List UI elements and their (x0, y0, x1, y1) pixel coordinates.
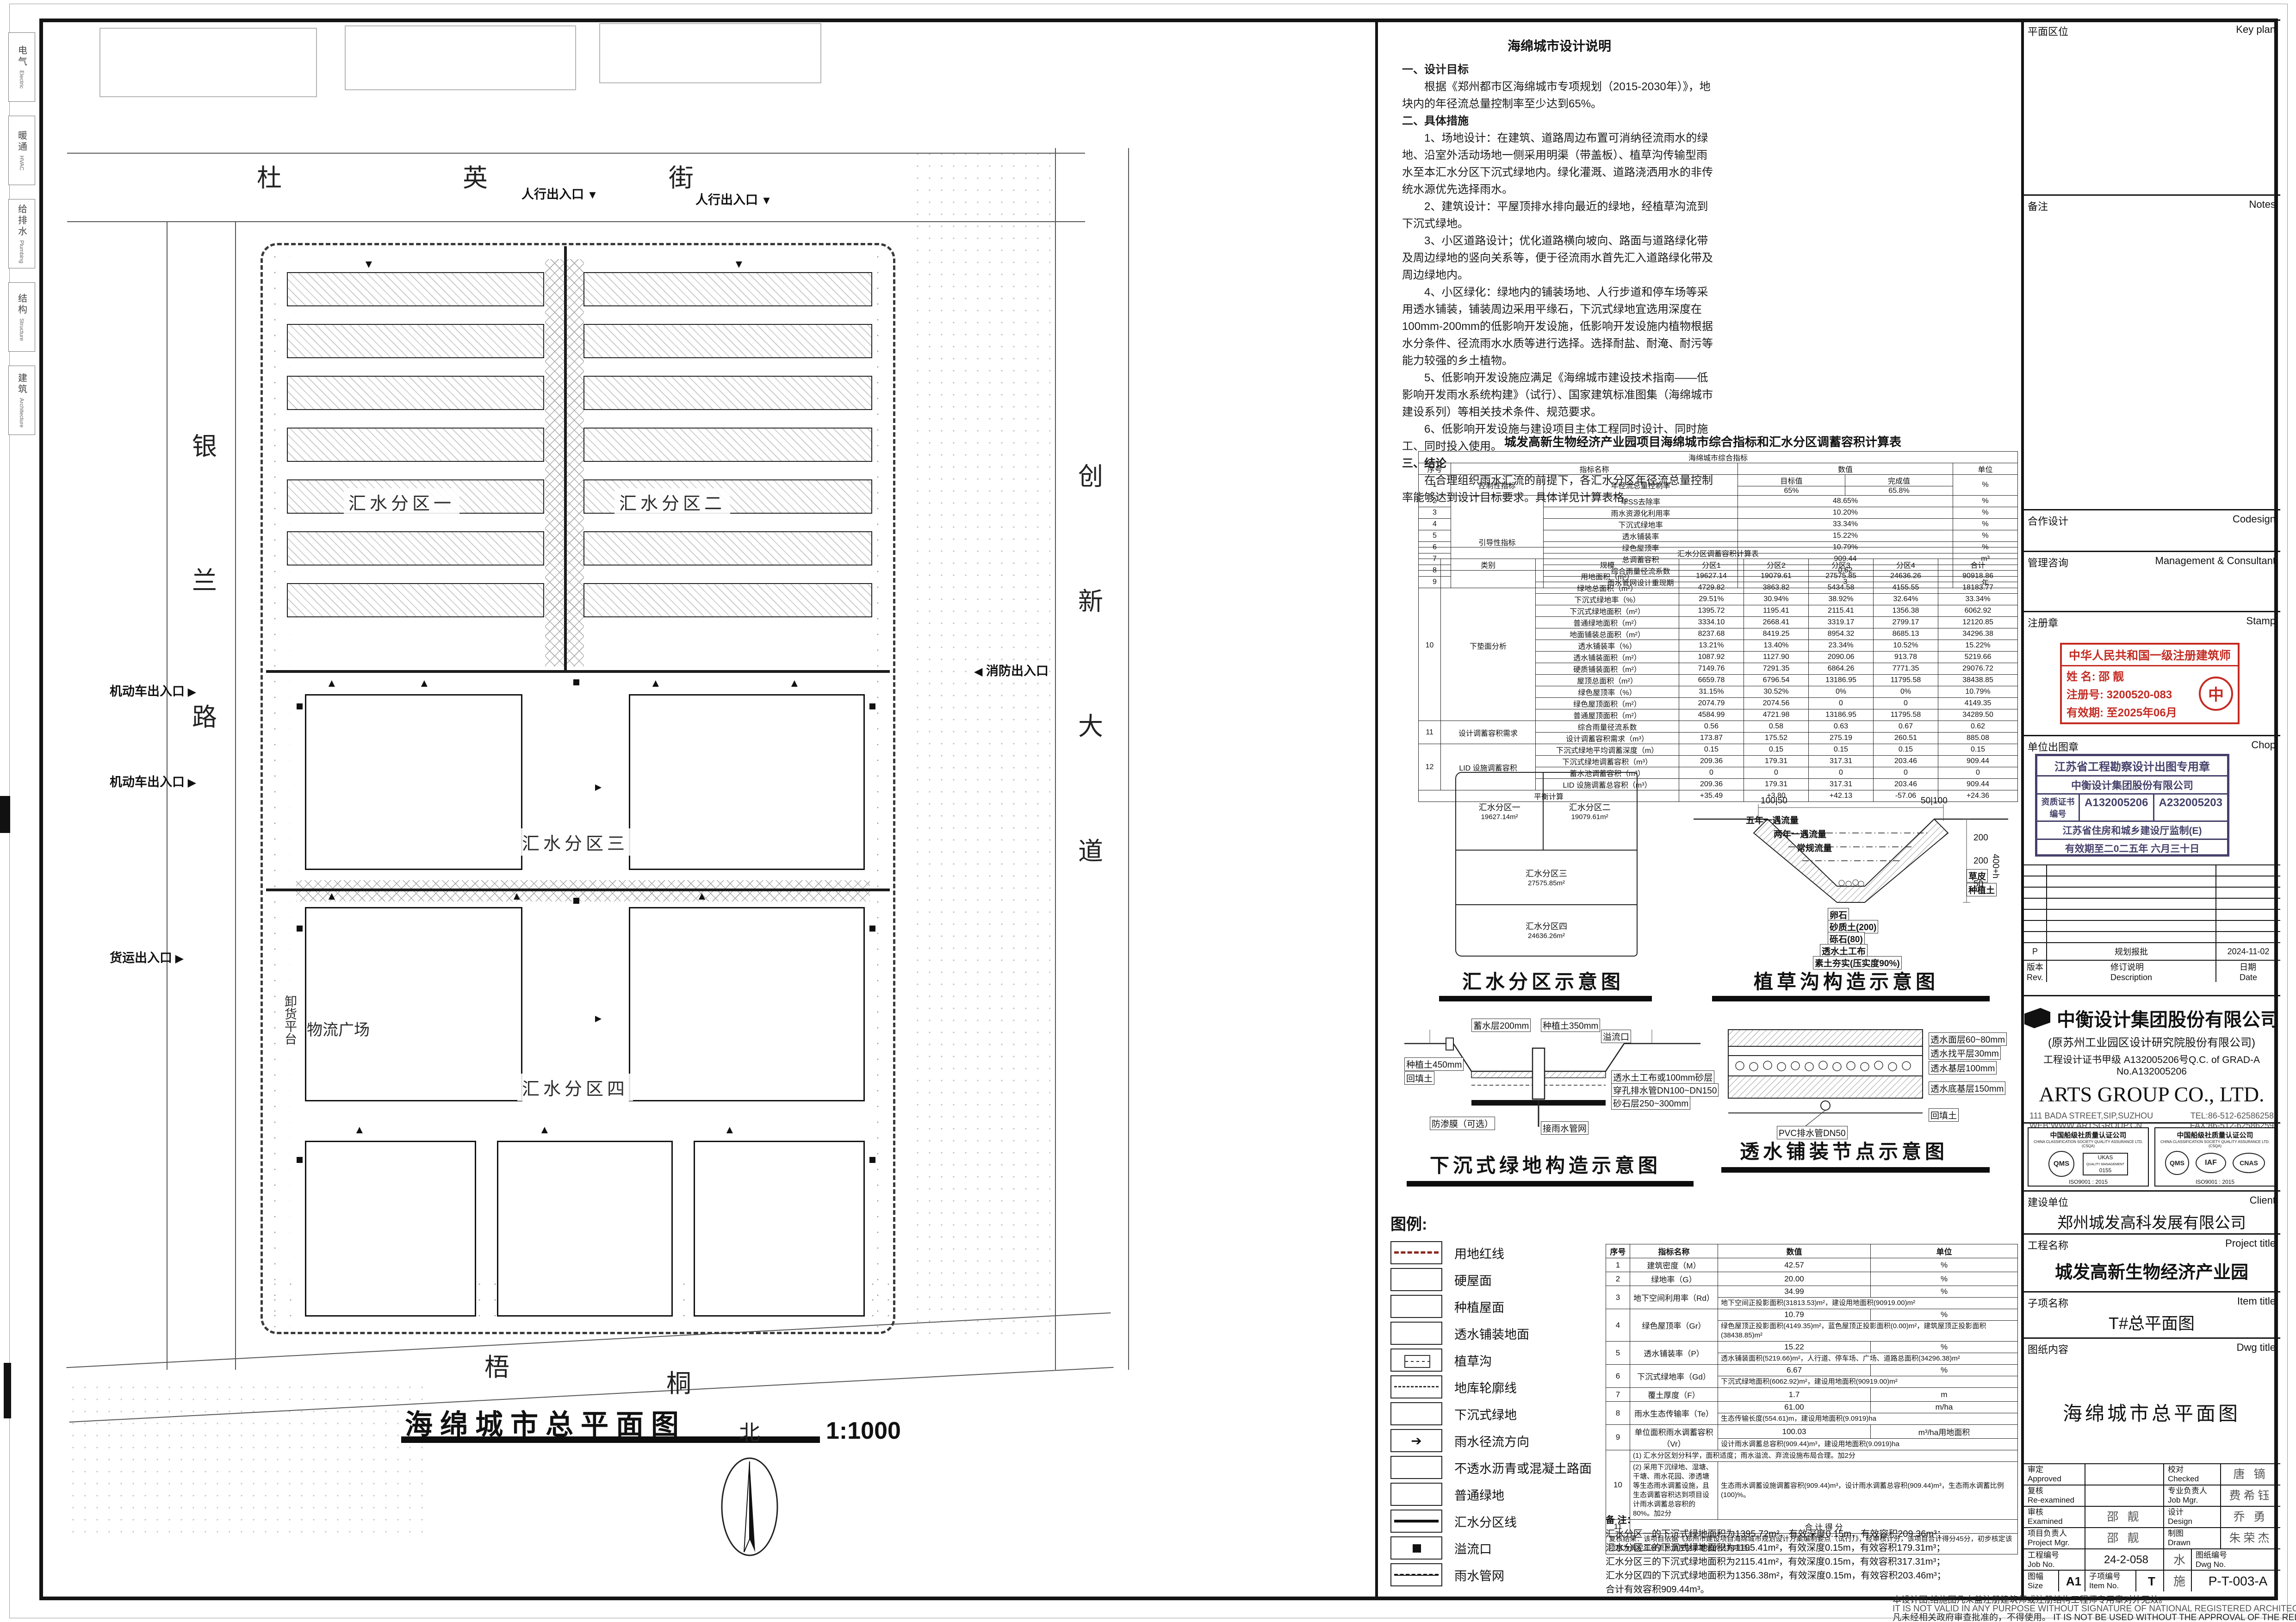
signature-cell: 朱荣杰 (2220, 1527, 2280, 1548)
swale-layer-label: 砾石(80) (1828, 932, 1865, 945)
stamp-seal-icon: 中 (2199, 666, 2238, 721)
building (583, 428, 872, 462)
zone-area: 24636.26m² (1528, 932, 1565, 940)
green-strip (267, 249, 290, 1327)
legend-item: 溢流口 (1390, 1536, 1492, 1560)
signature-cell: 图纸编号Dwg No. (2191, 1548, 2280, 1570)
catchment-divider (564, 246, 567, 672)
legend-label: 不透水沥青或混凝土路面 (1454, 1459, 1592, 1477)
discipline-strip: 建筑Architecture (8, 366, 35, 435)
overflow-outlet-icon (573, 898, 579, 904)
building (583, 583, 872, 617)
building (583, 324, 872, 358)
revision-cell (2023, 920, 2046, 931)
legend-swatch-pipe (1390, 1563, 1442, 1586)
entrance-label: 人行出入口 ▼ (695, 190, 772, 208)
signature-cell (2085, 1485, 2163, 1506)
revision-cell (2046, 898, 2215, 909)
runoff-arrow-icon: ▲ (593, 1013, 604, 1025)
runoff-arrow-icon: ▲ (724, 1125, 735, 1136)
entrance-arrow-icon: ▼ (758, 194, 772, 207)
chop-label-en: Chop (2251, 739, 2276, 754)
swale-flow-label: 五年一遇流量 (1744, 814, 1800, 826)
revision-cell (2023, 864, 2046, 876)
remark-line: 汇水分区三的下沉式绿地面积为2115.41m²，有效深度0.15m，有效容积31… (1606, 1555, 2017, 1569)
discipline-label-cn: 电气 (15, 45, 29, 68)
catchment-map-caption: 汇水分区示意图 (1462, 966, 1624, 994)
overflow-outlet-icon (297, 703, 303, 709)
green-belt-east (912, 148, 1050, 1342)
signature-cell: 邵 靓 (2085, 1527, 2163, 1548)
revision-cell (2046, 864, 2215, 876)
revision-cell (2023, 898, 2046, 909)
legend-item: 种植屋面 (1390, 1295, 1504, 1318)
zone-area: 19079.61m² (1571, 813, 1608, 821)
runoff-arrow-icon: ▲ (650, 678, 661, 689)
caption-bar (1407, 1181, 1694, 1187)
notes-heading: 二、具体措施 (1402, 112, 1717, 130)
revision-cell (2215, 898, 2280, 909)
building (583, 272, 872, 306)
notes-label-cn: 备注 (2028, 199, 2048, 213)
chop-label-cn: 单位出图章 (2028, 739, 2079, 754)
building (287, 324, 544, 358)
catchment-divider (266, 889, 890, 891)
discipline-strip: 暖通HVAC (8, 116, 35, 185)
swale-dim: 100|50 (1759, 796, 1789, 806)
stamp-label-en: Stamp (2246, 615, 2276, 630)
signature-cell: 专业负责人Job Mgr. (2163, 1485, 2220, 1506)
runoff-arrow-icon: ▲ (539, 1125, 550, 1136)
disclaimer-line: 本设计图,结施图凡未盖注册建筑师或注册结构工程师专用章对外无效。 (1893, 1596, 2286, 1604)
runoff-arrow-icon: ▲ (593, 782, 604, 793)
iaf-logo: IAF (2196, 1153, 2226, 1173)
binding-mark (4, 1363, 11, 1418)
swale-dim: 50 (1972, 879, 1985, 889)
legend-swatch-dots (1390, 1483, 1442, 1506)
signature-cell: 24-2-058 (2085, 1548, 2163, 1570)
swale-flow-label: 常规流量 (1795, 841, 1833, 854)
legend-label: 溢流口 (1454, 1539, 1492, 1557)
zone-name: 汇水分区三 (1526, 867, 1567, 879)
company-chop: 江苏省工程勘察设计出图专用章 中衡设计集团股份有限公司 资质证书编号 A1320… (2035, 754, 2229, 857)
street-name-char: 创 (1078, 456, 1103, 492)
legend-title: 图例: (1390, 1212, 1427, 1234)
client-section: 建设单位Client 郑州城发高科发展有限公司 (2023, 1190, 2280, 1233)
overflow-outlet-icon (869, 926, 875, 932)
 (1404, 1355, 1430, 1368)
zone-name: 汇水分区二 (1569, 801, 1611, 813)
revision-cell (2215, 931, 2280, 942)
paving-label: 透水找平层30mm (1929, 1046, 2001, 1060)
notes-paragraph: 3、小区道路设计；优化道路横向坡向、路面与道路绿化带及周边绿地的竖向关系等，便于… (1402, 232, 1717, 284)
green-strip (870, 249, 892, 1327)
signature-cell: 制图Drawn (2163, 1527, 2220, 1548)
runoff-arrow-icon: ▲ (696, 891, 707, 902)
score-table: 序号指标名称数值单位1建筑密度（M）42.57%2绿地率（G）20.00%3地下… (1606, 1244, 2017, 1554)
context-building (99, 28, 317, 97)
zone-name: 汇水分区四 (1526, 920, 1567, 932)
entrance-arrow-icon: ◀ (974, 665, 982, 678)
signature-cell: 邵 靓 (2085, 1506, 2163, 1527)
permeable-paving-diagram: 透水面层60~80mm透水找平层30mm透水基层100mm透水底基层150mm回… (1721, 1016, 2017, 1145)
street-name-char: 路 (192, 696, 217, 733)
legend-item: 雨水管网 (1390, 1563, 1504, 1586)
zone-name: 汇水分区一 (1479, 801, 1520, 813)
discipline-label-en: Structure (19, 318, 25, 341)
building (287, 428, 544, 462)
legend-swatch-arrow: ➔ (1390, 1429, 1442, 1452)
swale-dim: 200 (1972, 833, 1990, 843)
legend-item: 普通绿地 (1390, 1483, 1504, 1506)
legend-label: 普通绿地 (1454, 1485, 1504, 1504)
legend-swatch-grass (1390, 1402, 1442, 1425)
caption-bar (1712, 996, 1990, 1001)
legend-swatch-square (1390, 1536, 1442, 1560)
road-right (1055, 148, 1129, 1370)
cert-header-en: CHINA CLASSIFICATION SOCIETY QUALITY ASS… (2158, 1140, 2272, 1148)
dwg-name: 海绵城市总平面图 (2023, 1398, 2280, 1426)
street-name-char: 兰 (192, 560, 217, 597)
legend-item: 不透水沥青或混凝土路面 (1390, 1456, 1592, 1479)
revision-cell: 版本Rev. (2023, 960, 2046, 982)
management-label-cn: 管理咨询 (2028, 555, 2068, 570)
north-label: 北 (713, 1416, 787, 1447)
warehouse-building (629, 907, 865, 1101)
notes-section: 备注 Notes (2023, 194, 2280, 509)
notes-label-en: Notes (2249, 199, 2276, 213)
building (287, 583, 544, 617)
street-name-char: 新 (1078, 581, 1103, 617)
entrance-label: 货运出入口 ▶ (110, 948, 184, 966)
north-arrow: 北 (713, 1416, 787, 1555)
runoff-arrow-icon: ▲ (354, 1125, 365, 1136)
legend-item: 硬屋面 (1390, 1268, 1492, 1291)
warehouse-building (694, 1141, 865, 1317)
revision-cell (2023, 887, 2046, 898)
entrance-label: 机动车出入口 ▶ (110, 772, 196, 790)
company-address: 111 BADA STREET,SIP,SUZHOU (2029, 1111, 2153, 1121)
legend-label: 下沉式绿地 (1454, 1405, 1517, 1423)
discipline-label-en: Plumbing (19, 240, 25, 263)
keyplan-section: 平面区位 Key plan (2023, 19, 2280, 194)
runoff-arrow-icon: ▲ (326, 678, 337, 689)
warehouse-building (305, 694, 522, 870)
 (1394, 1386, 1439, 1387)
signature-cell: 审定Approved (2023, 1463, 2085, 1485)
entrance-arrow-icon: ▶ (185, 777, 196, 789)
signature-cell: A1 (2058, 1570, 2085, 1591)
cert-header-en: CHINA CLASSIFICATION SOCIETY QUALITY ASS… (2031, 1140, 2145, 1148)
swale-layer-label: 透水土工布 (1820, 944, 1868, 957)
project-section: 工程名称Project title 城发高新生物经济产业园 (2023, 1233, 2280, 1291)
revision-cell (2023, 876, 2046, 887)
swale-dim: 200 (1972, 856, 1990, 866)
keyplan-label-en: Key plan (2236, 24, 2276, 38)
entrance-arrow-icon: ▶ (172, 952, 184, 965)
swale-diagram: 五年一遇流量两年一遇流量常规流量卵石砂质土(200)砾石(80)透水土工布素土夯… (1689, 764, 2013, 958)
warehouse-building (305, 1141, 476, 1317)
site-plan: 杜英街银兰路创新大道梧桐 ▲▲▲▲▲▲▲▲▲▲▲▲▲▲ 汇水分区一汇水分区二汇水… (39, 19, 1375, 1600)
revision-cell: P (2023, 942, 2046, 960)
signature-cell: 图幅Size (2023, 1570, 2058, 1591)
warehouse-building (305, 907, 522, 1101)
discipline-label-cn: 建筑 (15, 373, 29, 395)
revision-cell (2023, 909, 2046, 920)
legend-item: 用地红线 (1390, 1241, 1504, 1264)
company-name-cn: 中衡设计集团股份有限公司 (2057, 1005, 2279, 1032)
 (1413, 1544, 1421, 1553)
company-logo (2024, 1008, 2050, 1028)
legend-label: 地库轮廓线 (1454, 1378, 1517, 1396)
 (1394, 1251, 1439, 1254)
sunken-label: 防渗膜（可选） (1430, 1117, 1495, 1130)
catchment-divider (266, 670, 890, 673)
calc-table-title: 城发高新生物经济产业园项目海绵城市综合指标和汇水分区调蓄容积计算表 (1388, 433, 2017, 450)
overflow-outlet-icon (573, 679, 579, 685)
swale-layer-label: 砂质土(200) (1828, 920, 1878, 933)
revision-cell (2046, 920, 2215, 931)
signature-cell: 子项编号Item No. (2085, 1570, 2135, 1591)
column-divider (1375, 19, 1378, 1600)
street-name-char: 银 (192, 426, 217, 462)
architect-stamp: 中华人民共和国一级注册建筑师 姓 名: 邵 靓 注册号: 3200520-083… (2060, 643, 2240, 724)
stamp-label-cn: 注册章 (2028, 615, 2058, 630)
overflow-outlet-icon (869, 703, 875, 709)
disclaimer-line: 凡未经相关政府审查批准的，不得使用。 IT IS NOT BE USED WIT… (1893, 1613, 2286, 1622)
signature-cell: 施 (2163, 1570, 2191, 1591)
street-name-char: 街 (669, 157, 694, 194)
notes-paragraph: 2、建筑设计：平屋顶排水排向最近的绿地，经植草沟流到下沉式绿地。 (1402, 198, 1717, 232)
street-name-char: 大 (1078, 706, 1103, 742)
paving-caption: 透水铺装节点示意图 (1740, 1136, 1948, 1164)
street-name-char: 梧 (484, 1347, 509, 1383)
legend-label: 植草沟 (1454, 1351, 1492, 1369)
sunken-label: 种植土450mm (1404, 1057, 1464, 1071)
company-section: 中衡设计集团股份有限公司 (原苏州工业园区设计研究院股份有限公司) 工程设计证书… (2023, 995, 2280, 1122)
entrance-arrow-icon: ▼ (584, 189, 598, 201)
swale-caption: 植草沟构造示意图 (1754, 966, 1939, 994)
management-section: 管理咨询 Management & Consultant (2023, 551, 2280, 611)
legend-swatch-red-dash (1390, 1241, 1442, 1264)
signature-cell: 设计Design (2163, 1506, 2220, 1527)
notes-paragraph: 1、场地设计：在建筑、道路周边布置可消纳径流雨水的绿地、沿室外活动场地一侧采用明… (1402, 130, 1717, 198)
legend-item: 透水铺装地面 (1390, 1322, 1529, 1345)
sunken-label: 蓄水层200mm (1471, 1019, 1531, 1032)
overflow-outlet-icon (297, 926, 303, 932)
revision-cell: 2024-11-02 (2215, 942, 2280, 960)
legend-swatch-swale (1390, 1349, 1442, 1372)
codesign-label-en: Codesign (2233, 513, 2276, 528)
signature-cell: 费希钰 (2220, 1485, 2280, 1506)
sunken-label: 溢流口 (1601, 1030, 1631, 1043)
remarks-title: 备 注： (1606, 1513, 2017, 1527)
legend-item: 地库轮廓线 (1390, 1375, 1517, 1398)
discipline-label-en: Electric (19, 70, 25, 88)
discipline-label-cn: 暖通 (15, 131, 29, 153)
swale-dim: 400+h (1989, 854, 2002, 878)
chop-section: 单位出图章 Chop 江苏省工程勘察设计出图专用章 中衡设计集团股份有限公司 资… (2023, 735, 2280, 864)
warehouse-building (629, 694, 865, 870)
revision-cell (2046, 887, 2215, 898)
revision-cell (2215, 876, 2280, 887)
disclaimer: 本设计图,结施图凡未盖注册建筑师或注册结构工程师专用章对外无效。 IT IS N… (1893, 1596, 2286, 1622)
swale-dim: 50|100 (1919, 796, 1949, 806)
remark-line: 汇水分区一的下沉式绿地面积为1395.72m²，有效深度0.15m，有效容积20… (1606, 1527, 2017, 1541)
overflow-outlet-icon (297, 1157, 303, 1163)
legend-swatch-plain (1390, 1268, 1442, 1291)
street-name-char: 杜 (257, 157, 282, 194)
signature-cell: P-T-003-A (2191, 1570, 2280, 1591)
item-section: 子项名称Item title T#总平面图 (2023, 1291, 2280, 1337)
notes-heading: 一、设计目标 (1402, 61, 1717, 78)
building (287, 272, 544, 306)
remark-line: 汇水分区二的下沉式绿地面积为1195.41m²，有效深度0.15m，有效容积17… (1606, 1541, 2017, 1555)
zone-area: 19627.14m² (1481, 813, 1518, 821)
codesign-section: 合作设计 Codesign (2023, 509, 2280, 551)
revision-cell (2215, 864, 2280, 876)
discipline-label-cn: 给排水 (15, 204, 29, 237)
company-name-en: ARTS GROUP CO., LTD. (2023, 1082, 2280, 1106)
remarks: 备 注： 汇水分区一的下沉式绿地面积为1395.72m²，有效深度0.15m，有… (1606, 1513, 2017, 1597)
sunken-label: 种植土350mm (1541, 1019, 1600, 1032)
legend-label: 雨水径流方向 (1454, 1432, 1529, 1450)
legend-item: 下沉式绿地 (1390, 1402, 1517, 1425)
stamp-title: 中华人民共和国一级注册建筑师 (2062, 645, 2238, 666)
management-label-en: Management & Consultant (2155, 555, 2276, 570)
item-name: T#总平面图 (2023, 1310, 2280, 1334)
entrance-label: ◀ 消防出入口 (974, 661, 1049, 679)
legend-label: 透水铺装地面 (1454, 1324, 1529, 1342)
legend-label: 种植屋面 (1454, 1298, 1504, 1316)
revision-cell (2046, 876, 2215, 887)
swale-flow-label: 两年一遇流量 (1772, 827, 1828, 840)
company-cert-line: 工程设计证书甲级 A132005206号Q.C. of GRAD-A No.A1… (2023, 1052, 2280, 1077)
street-name-char: 道 (1078, 831, 1103, 867)
catchment-zone-label: 汇水分区三 (517, 828, 633, 856)
revision-cell: 修订说明Description (2046, 960, 2215, 982)
legend-label: 硬屋面 (1454, 1271, 1492, 1289)
green-area-southwest (67, 1381, 423, 1534)
 (1394, 1575, 1439, 1576)
caption-bar (1439, 996, 1652, 1001)
catchment-zone-label: 汇水分区四 (517, 1074, 633, 1101)
discipline-label-en: Architecture (19, 398, 25, 428)
revision-cell (2215, 887, 2280, 898)
revision-cell (2046, 909, 2215, 920)
disclaimer-line: IT IS NOT VALID IN ANY PURPOSE WITHOUT S… (1893, 1604, 2286, 1613)
cnas-logo: CNAS (2233, 1153, 2265, 1173)
runoff-arrow-icon: ▲ (419, 678, 430, 689)
codesign-label-cn: 合作设计 (2028, 513, 2068, 528)
sunken-label: 砂石层250~300mm (1611, 1096, 1690, 1110)
certifications-section: 中国船级社质量认证公司 CHINA CLASSIFICATION SOCIETY… (2023, 1122, 2280, 1190)
catchment-map-diagram: 汇水分区一 19627.14m² 汇水分区二 19079.61m² 汇水分区三 … (1437, 772, 1654, 957)
entrance-label: 人行出入口 ▼ (521, 184, 598, 202)
legend-swatch-xhatch (1390, 1322, 1442, 1345)
discipline-strip: 结构Structure (8, 282, 35, 352)
signature-cell: 审核Examined (2023, 1506, 2085, 1527)
discipline-strip: 给排水Plumbing (8, 199, 35, 268)
notes-paragraph: 4、小区绿化：绿地内的铺装场地、人行步道和停车场等采用透水铺装，铺装周边采用平缘… (1402, 284, 1717, 369)
discipline-label-cn: 结构 (15, 293, 29, 316)
legend-swatch-speck (1390, 1456, 1442, 1479)
sunken-label: 回填土 (1404, 1071, 1434, 1085)
revision-cell (2046, 931, 2215, 942)
legend-swatch-thick-line (1390, 1510, 1442, 1533)
paving-label: 透水基层100mm (1929, 1061, 1997, 1075)
revision-cell (2215, 920, 2280, 931)
keyplan-label-cn: 平面区位 (2028, 24, 2068, 38)
street-name-char: 英 (463, 157, 488, 194)
 (1394, 1520, 1439, 1523)
runoff-arrow-icon: ▲ (363, 259, 374, 270)
legend-item: ➔雨水径流方向 (1390, 1429, 1529, 1452)
sunken-label: 穿孔排水管DN100~DN150 (1611, 1083, 1719, 1097)
building (583, 376, 872, 410)
sunken-label: 接雨水管网 (1541, 1121, 1589, 1135)
signature-cell: 项目负责人Project Mgr. (2023, 1527, 2085, 1548)
cert-header-cn: 中国船级社质量认证公司 (2158, 1130, 2272, 1140)
signature-cell: 校对Checked (2163, 1463, 2220, 1485)
catchment-zone-label: 汇水分区一 (344, 488, 459, 516)
building (287, 531, 544, 566)
zone-area: 27575.85m² (1528, 879, 1565, 887)
notes-title: 海绵城市设计说明 (1402, 36, 1717, 55)
revision-cell (2215, 909, 2280, 920)
qms-logo: QMS (2048, 1151, 2074, 1177)
discipline-label-en: HVAC (19, 155, 25, 170)
legend-item: 汇水分区线 (1390, 1510, 1517, 1533)
dwg-title-section: 图纸内容Dwg title 海绵城市总平面图 (2023, 1337, 2280, 1463)
project-name: 城发高新生物经济产业园 (2023, 1258, 2280, 1283)
swale-layer-label: 卵石 (1828, 908, 1849, 921)
runoff-arrow-icon: ▲ (789, 678, 800, 689)
cert-header-cn: 中国船级社质量认证公司 (2031, 1130, 2145, 1140)
warehouse-building (497, 1141, 673, 1317)
revision-cell: 日期Date (2215, 960, 2280, 982)
legend-swatch-dash-thin (1390, 1375, 1442, 1398)
company-former-name: (原苏州工业园区设计研究院股份有限公司) (2023, 1033, 2280, 1050)
revision-cell (2023, 931, 2046, 942)
signature-cell (2085, 1463, 2163, 1485)
caption-bar (1721, 1167, 1990, 1173)
qms-logo: QMS (2165, 1151, 2189, 1175)
ukas-logo: UKAS QUALITY MANAGEMENT 0155 (2083, 1153, 2128, 1175)
road-left (167, 222, 236, 1370)
sunken-green-diagram: 蓄水层200mm种植土350mm溢流口透水土工布或100mm砂层穿孔排水管DN1… (1402, 1016, 1703, 1145)
legend-item: 植草沟 (1390, 1349, 1492, 1372)
paving-label: 回填土 (1929, 1108, 1959, 1122)
binding-mark (0, 796, 10, 833)
client-name: 郑州城发高科发展有限公司 (2023, 1210, 2280, 1233)
revision-cell: 规划报批 (2046, 942, 2215, 960)
legend-label: 汇水分区线 (1454, 1512, 1517, 1530)
legend-label: 雨水管网 (1454, 1566, 1504, 1584)
context-building (345, 25, 576, 90)
signature-cell: 工程编号Job No. (2023, 1548, 2085, 1570)
paving-label: 透水面层60~80mm (1929, 1032, 2007, 1046)
signature-cell: 乔 勇 (2220, 1506, 2280, 1527)
site-label: 物流广场 (307, 1017, 370, 1040)
overflow-outlet-icon (869, 1157, 875, 1163)
entrance-label: 机动车出入口 ▶ (110, 681, 196, 699)
building (583, 531, 872, 566)
signature-cell: 唐 镝 (2220, 1463, 2280, 1485)
site-label: 卸货平台 (281, 995, 299, 1045)
remark-line: 合计有效容积909.44m³。 (1606, 1583, 2017, 1597)
context-building (599, 23, 821, 83)
